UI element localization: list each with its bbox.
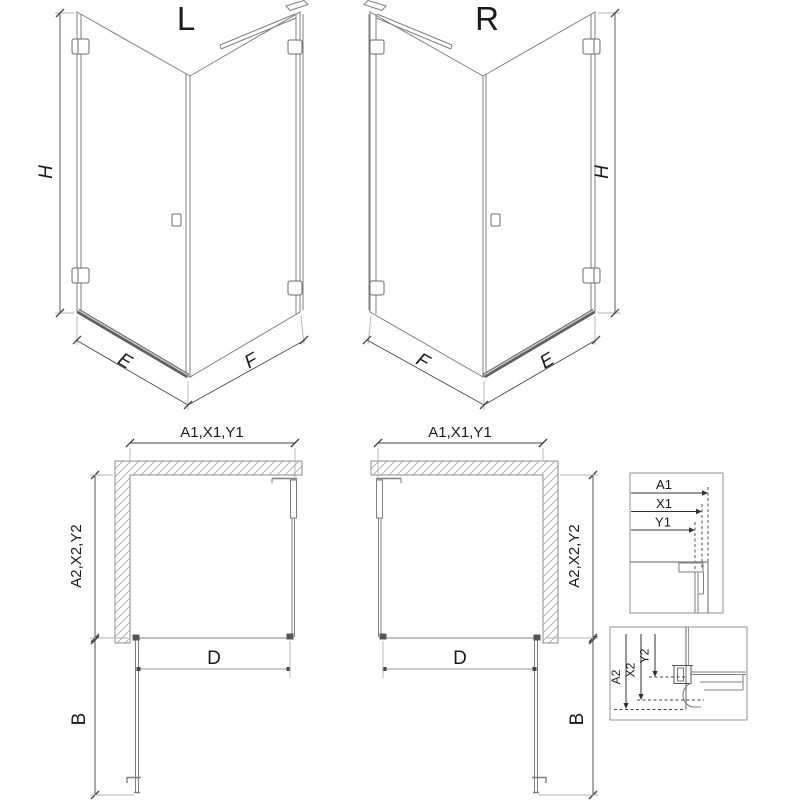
- hinge-mark: [534, 635, 541, 641]
- dim-label-d-left: D: [207, 648, 221, 669]
- support-bar: [220, 14, 296, 49]
- plan-right-dimensions: [374, 439, 598, 799]
- dim-label-f-right: F: [412, 349, 434, 374]
- dim-label-a1x1y1-left: A1,X1,Y1: [180, 424, 243, 441]
- detail-dim-label-y2: Y2: [638, 648, 652, 663]
- wall-profile: [272, 479, 297, 519]
- wall-section: [115, 461, 302, 643]
- variant-label-left: L: [177, 0, 195, 37]
- open-door: [127, 640, 141, 793]
- drawing-canvas: L H E F: [0, 0, 800, 800]
- wall-profile: [376, 479, 401, 519]
- dim-label-b-right: B: [567, 713, 588, 726]
- detail-dim-label-y1: Y1: [655, 515, 671, 530]
- plan-view-right: [371, 461, 558, 793]
- detail-dim-label-a1: A1: [656, 477, 672, 492]
- dim-label-a2x2y2-right: A2,X2,Y2: [566, 524, 583, 587]
- detail-tray-profile: A2 X2 Y2: [609, 627, 747, 720]
- detail-dim-label-x2: X2: [624, 662, 638, 677]
- detail-dim-label-a2: A2: [609, 669, 623, 684]
- dim-label-e-left: E: [114, 349, 136, 374]
- plan-view-left: [115, 461, 302, 793]
- dim-label-a1x1y1-right: A1,X1,Y1: [428, 424, 491, 441]
- open-door: [532, 640, 546, 793]
- iso-view-left: [72, 1, 308, 378]
- threshold-bar: [484, 310, 594, 376]
- dim-label-d-right: D: [453, 648, 467, 669]
- threshold-bar: [78, 310, 188, 376]
- panel-foot-mark: [380, 634, 387, 640]
- iso-left-dimensions: [55, 9, 308, 410]
- dim-label-b-left: B: [69, 713, 90, 726]
- detail-wall-profile: A1 X1 Y1: [630, 473, 723, 613]
- dim-label-f-left: F: [241, 349, 263, 374]
- dim-label-h-right: H: [592, 165, 613, 179]
- detail-frame: [630, 473, 723, 613]
- door-knob: [172, 214, 181, 226]
- technical-drawing-sheet: L H E F: [0, 0, 800, 800]
- iso-right-dimensions: [363, 9, 620, 410]
- door-knob: [491, 214, 500, 226]
- panel-foot-mark: [287, 634, 294, 640]
- fixed-panel: [190, 12, 300, 377]
- support-bar: [376, 14, 452, 49]
- wall-section: [371, 461, 558, 643]
- dim-label-e-right: E: [537, 349, 559, 374]
- fixed-panel: [370, 12, 483, 377]
- panel-clamps: [370, 40, 384, 295]
- wall-bracket: [364, 1, 386, 11]
- detail-dim-label-x1: X1: [656, 496, 672, 511]
- iso-view-right: [364, 1, 600, 378]
- wall-bracket: [286, 1, 308, 11]
- dim-label-h-left: H: [36, 165, 57, 179]
- variant-label-right: R: [475, 0, 499, 37]
- dim-label-a2x2y2-left: A2,X2,Y2: [68, 524, 85, 587]
- hinge-mark: [133, 635, 140, 641]
